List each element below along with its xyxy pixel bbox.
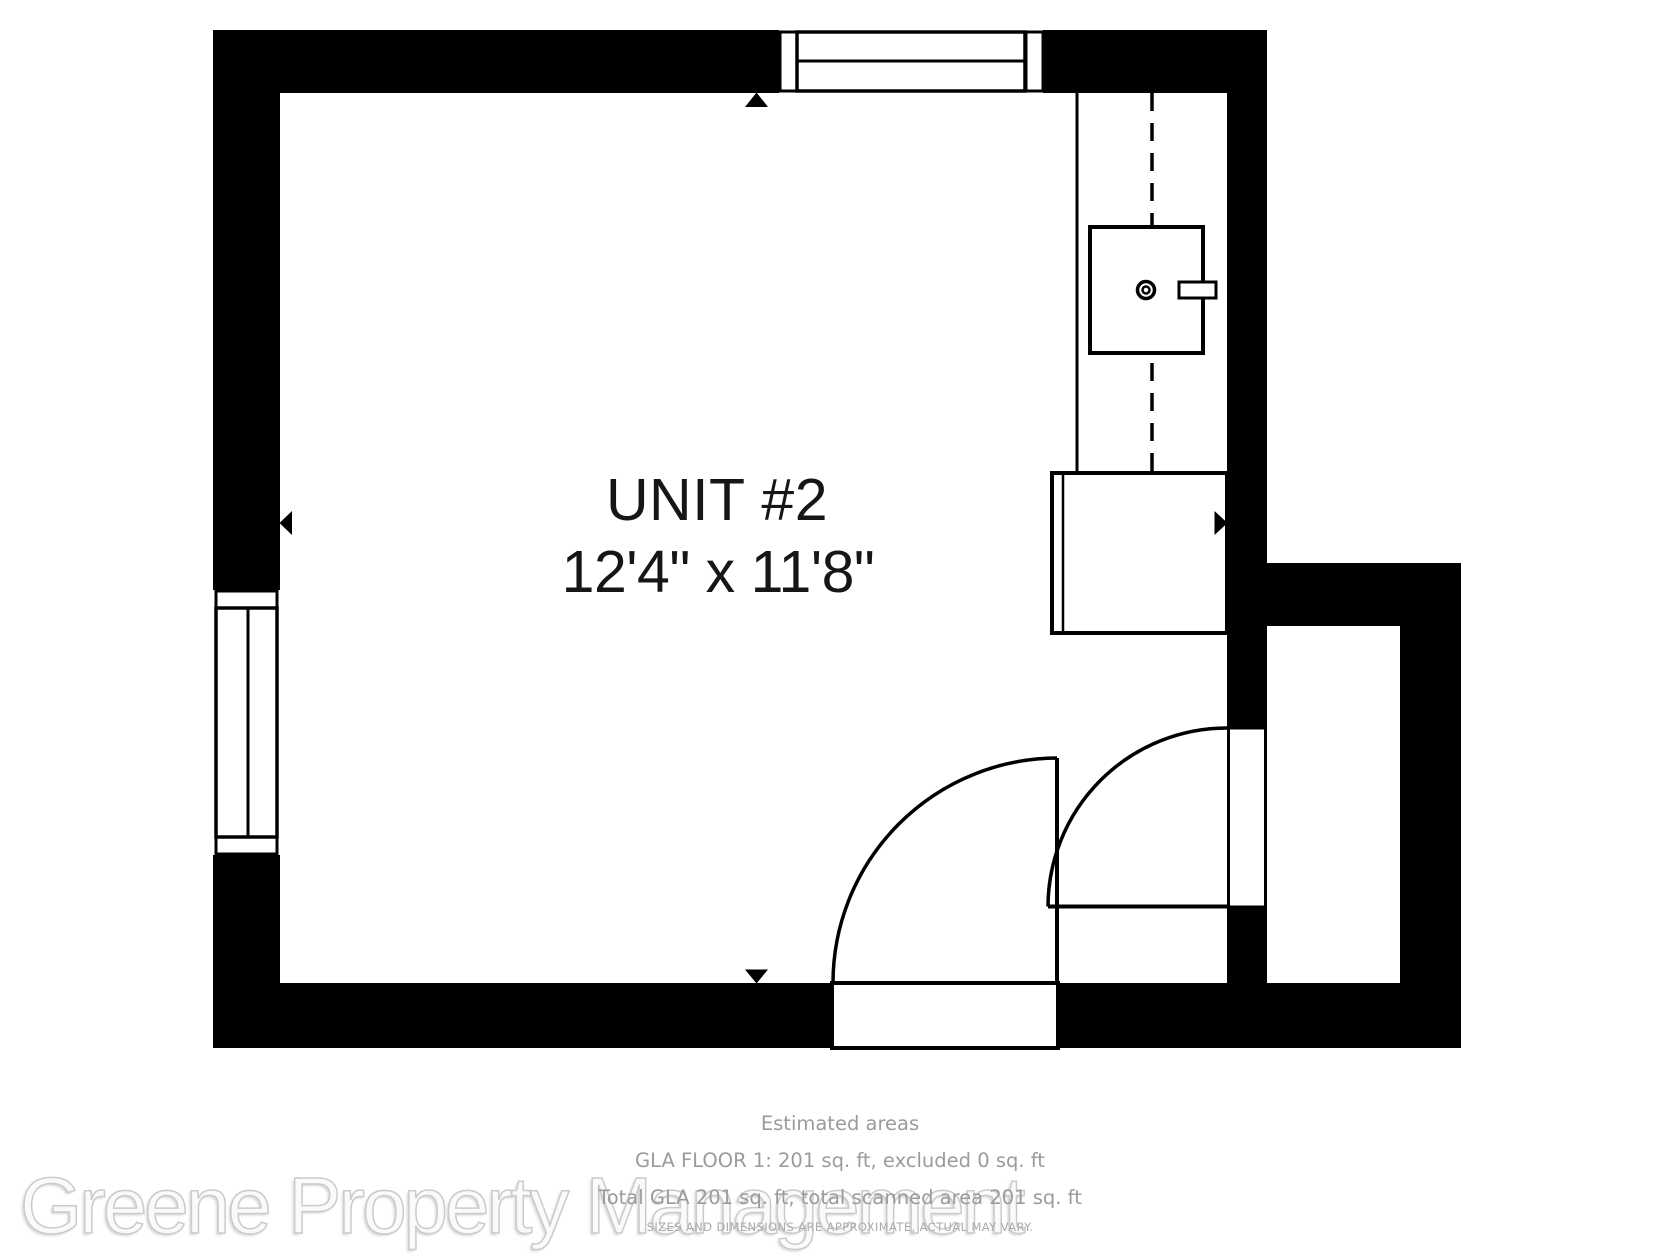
left-wall: [213, 30, 280, 1048]
entry-door-threshold: [832, 983, 1058, 1048]
closet-door: [1048, 728, 1227, 907]
alcove-right-wall: [1400, 563, 1461, 1048]
scan-center-arrow-left-icon: [280, 511, 293, 535]
counter: [1052, 473, 1227, 633]
closet-doorway: [1229, 728, 1266, 907]
top-window-jamb-left: [780, 32, 797, 91]
disclaimer-line: SIZES AND DIMENSIONS ARE APPROXIMATE, AC…: [0, 1221, 1680, 1235]
water-heater-connector: [1179, 282, 1216, 298]
gla-floor-line: GLA FLOOR 1: 201 sq. ft, excluded 0 sq. …: [0, 1149, 1680, 1172]
scan-center-arrow-up-icon: [745, 93, 768, 108]
scan-center-arrow-down-icon: [745, 970, 768, 984]
estimated-areas-heading: Estimated areas: [0, 1112, 1680, 1135]
utility-area: [1052, 93, 1227, 633]
left-window: [213, 590, 280, 855]
counter-box: [1052, 473, 1227, 633]
left-window-jamb-bottom: [216, 837, 277, 854]
closet-door-swing-arc: [1048, 728, 1227, 907]
entry-door-swing-arc: [833, 758, 1057, 983]
floor-plan: UNIT #2 12'4" x 11'8": [0, 0, 1680, 1260]
top-window: [779, 30, 1043, 93]
top-window-jamb-right: [1026, 32, 1043, 91]
floorplan-page: Greene Property Management: [0, 0, 1680, 1260]
left-window-jamb-top: [216, 591, 277, 608]
top-wall: [213, 30, 1267, 93]
room-dimensions: 12'4" x 11'8": [562, 539, 875, 605]
total-gla-line: Total GLA 201 sq. ft, total scanned area…: [0, 1186, 1680, 1209]
right-wall-lower: [1227, 907, 1267, 983]
room-label: UNIT #2: [606, 467, 828, 533]
entry-door: [832, 758, 1058, 1048]
water-heater-icon: [1090, 227, 1216, 353]
